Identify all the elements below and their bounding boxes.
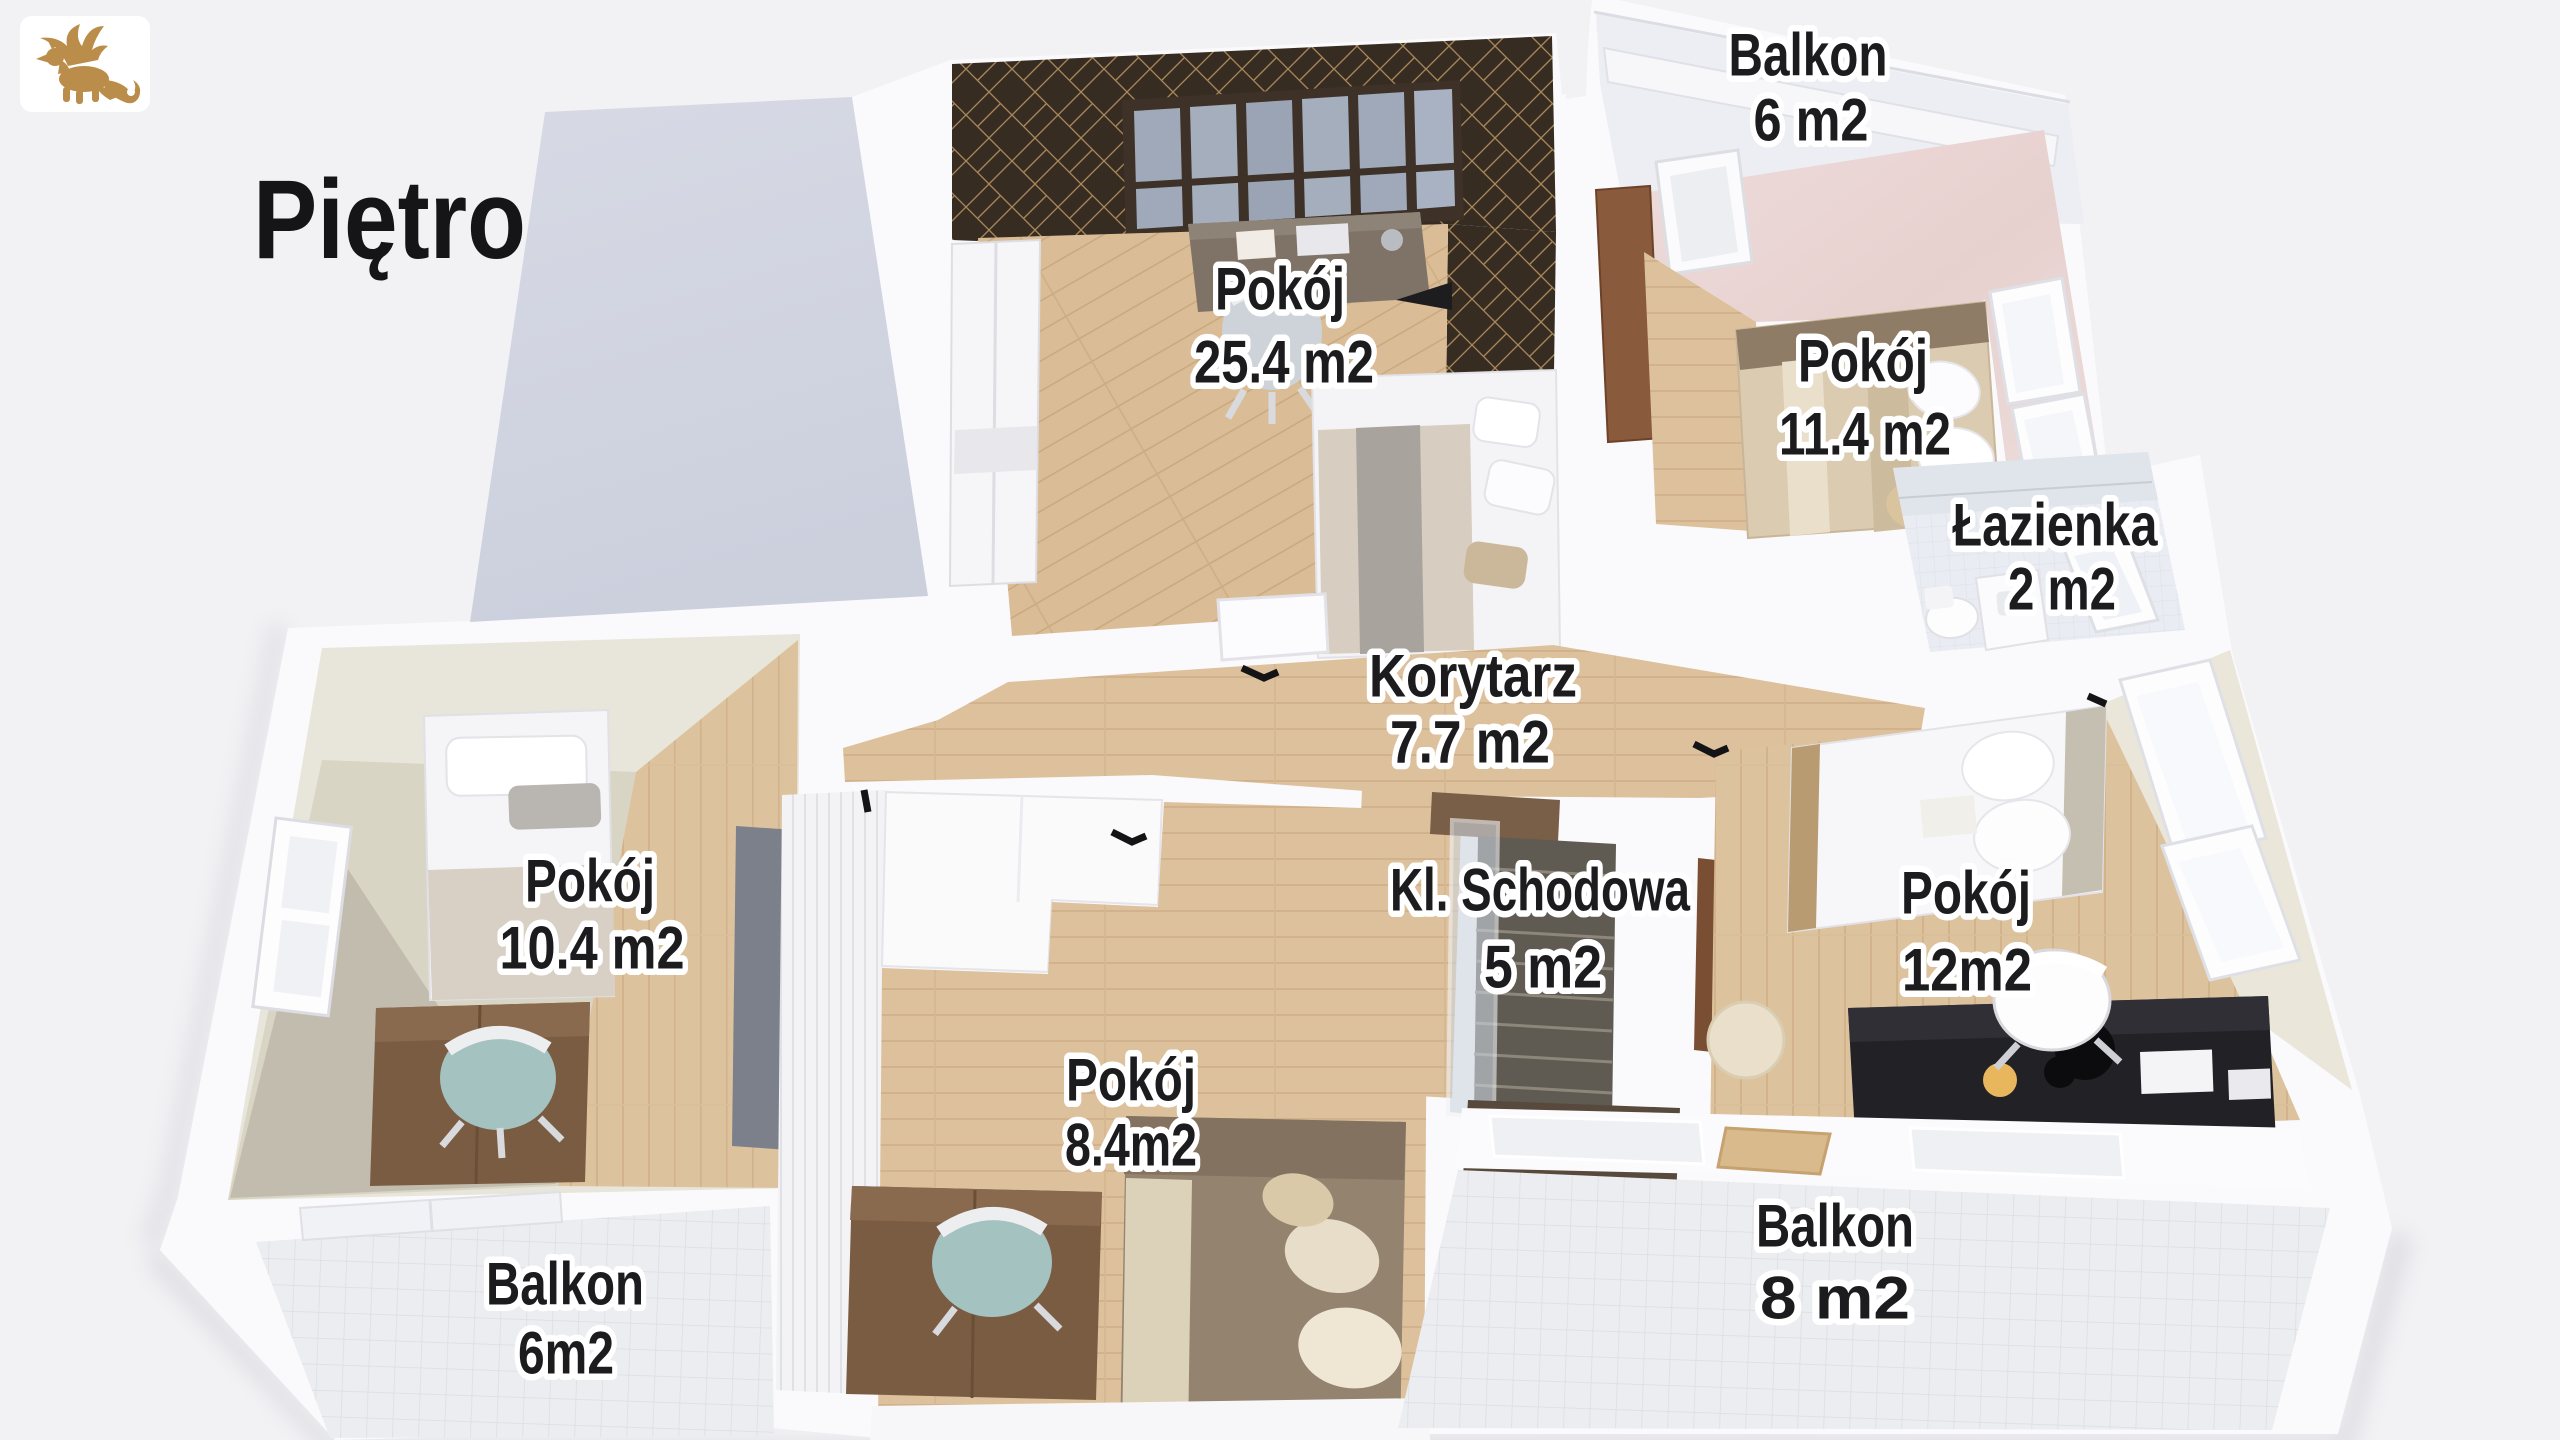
- svg-text:Balkon: Balkon: [1729, 22, 1888, 89]
- svg-text:8 m2: 8 m2: [1760, 1265, 1910, 1332]
- svg-text:6m2: 6m2: [518, 1320, 614, 1387]
- svg-text:Korytarz: Korytarz: [1369, 643, 1577, 710]
- svg-text:25.4 m2: 25.4 m2: [1194, 329, 1374, 396]
- svg-text:Łazienka: Łazienka: [1953, 492, 2159, 559]
- svg-text:Pokój: Pokój: [525, 848, 655, 915]
- svg-text:Balkon: Balkon: [486, 1251, 644, 1318]
- svg-text:7.7 m2: 7.7 m2: [1390, 709, 1550, 776]
- svg-text:Pokój: Pokój: [1066, 1047, 1196, 1114]
- svg-text:Balkon: Balkon: [1756, 1193, 1914, 1260]
- svg-text:Kl. Schodowa: Kl. Schodowa: [1390, 857, 1690, 924]
- svg-text:8.4m2: 8.4m2: [1065, 1112, 1197, 1179]
- svg-text:Piętro: Piętro: [253, 157, 526, 282]
- svg-text:10.4 m2: 10.4 m2: [500, 915, 685, 982]
- svg-text:5 m2: 5 m2: [1484, 934, 1602, 1001]
- svg-text:11.4 m2: 11.4 m2: [1779, 401, 1951, 468]
- svg-text:Pokój: Pokój: [1901, 860, 2031, 927]
- svg-text:12m2: 12m2: [1902, 937, 2032, 1004]
- svg-text:Pokój: Pokój: [1215, 256, 1345, 323]
- svg-text:6 m2: 6 m2: [1754, 87, 1869, 154]
- svg-text:2 m2: 2 m2: [2008, 556, 2116, 623]
- svg-text:Pokój: Pokój: [1798, 328, 1928, 395]
